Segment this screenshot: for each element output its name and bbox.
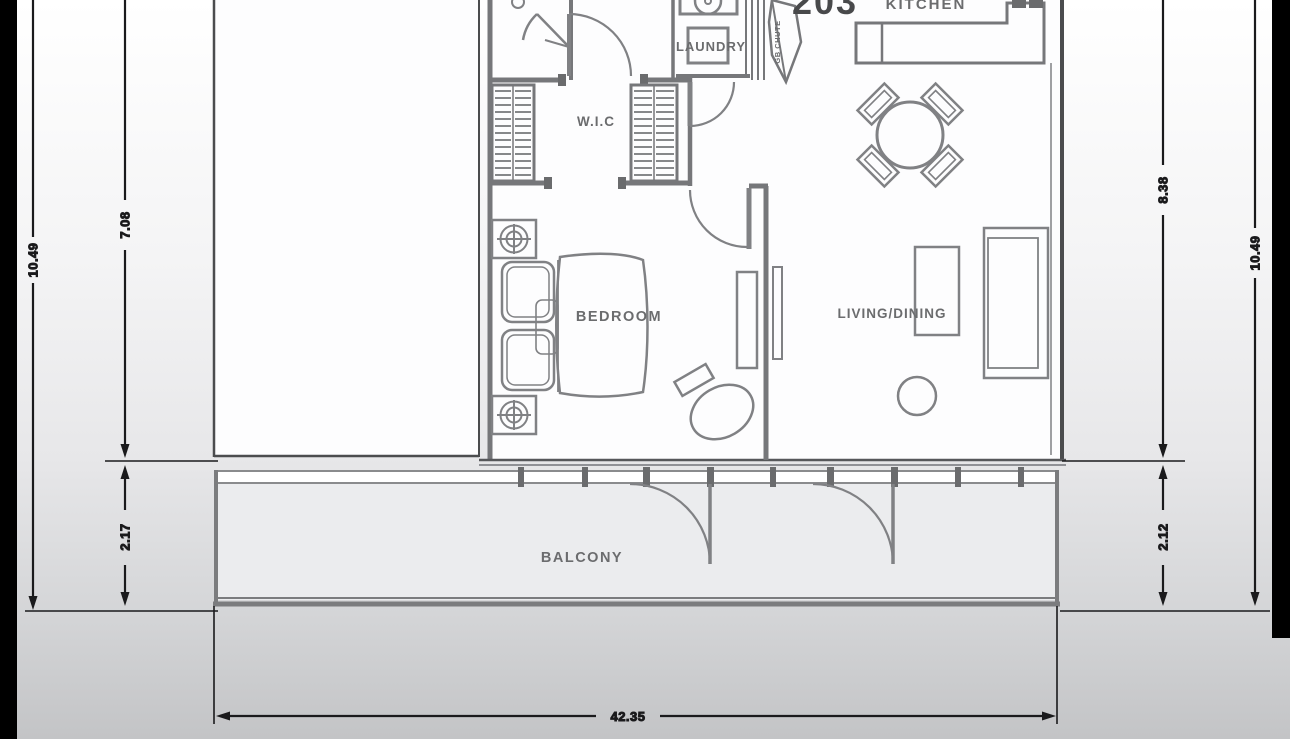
dimension-value: 10.49 — [1248, 235, 1263, 270]
chute-label: GB CHUTE — [773, 20, 782, 63]
dimension-value: 42.35 — [610, 709, 645, 724]
empty-room-floor — [214, 0, 479, 457]
unit-floor — [490, 0, 1062, 460]
balcony-floor — [218, 472, 1056, 600]
dimension-value: 2.17 — [118, 523, 133, 550]
dimension-value: 2.12 — [1156, 523, 1171, 550]
wic-label: W.I.C — [577, 114, 615, 129]
photo-border-left — [0, 0, 17, 739]
dimension-value: 8.38 — [1156, 176, 1171, 203]
bedroom-label: BEDROOM — [576, 309, 662, 325]
living-dining-label: LIVING/DINING — [837, 306, 946, 321]
floorplan-drawing: GB CHUTE — [0, 0, 1290, 739]
dimension-value: 10.49 — [26, 242, 41, 277]
floorplan-screenshot: GB CHUTE — [0, 0, 1290, 739]
balcony-label: BALCONY — [541, 550, 623, 566]
unit-number-label: 203 — [792, 0, 858, 22]
photo-border-right — [1272, 0, 1290, 638]
dimension-value: 7.08 — [118, 211, 133, 238]
laundry-label: LAUNDRY — [676, 39, 746, 54]
kitchen-label: KITCHEN — [886, 0, 967, 13]
